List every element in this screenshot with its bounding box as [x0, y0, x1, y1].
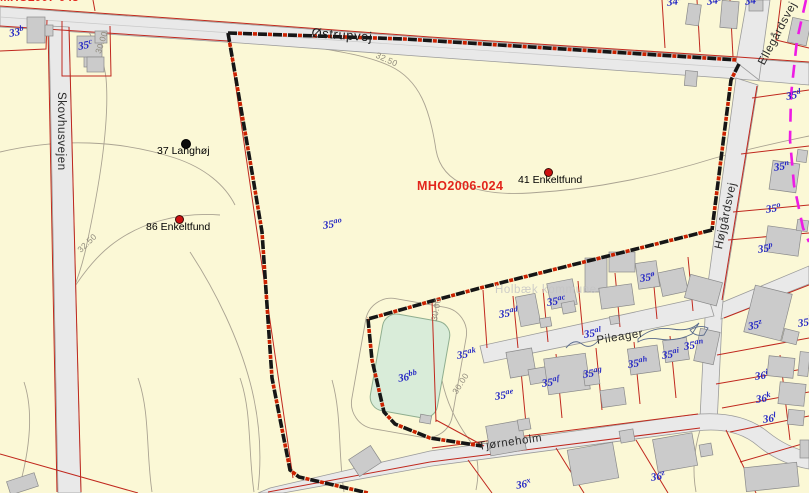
parcel-label: 35al — [583, 326, 602, 341]
parcel-label: 35an — [683, 337, 705, 353]
find-label: 37 Langhøj — [157, 146, 210, 157]
map-canvas[interactable]: MHO2007-043 Østrupvej Skovhusvejen Elleg… — [0, 0, 809, 493]
municipality-watermark: Holbæk kommune — [495, 285, 597, 297]
parcel-label: 35ag — [582, 365, 603, 381]
parcel-label: 35af — [541, 374, 561, 389]
case-number-label: MHO2006-024 — [417, 180, 503, 193]
parcel-label: 33b — [8, 24, 25, 39]
parcel-label: 35n — [773, 159, 790, 174]
parcel-label: 35ah — [627, 355, 649, 371]
map-geometry — [0, 0, 809, 493]
parcel-label: 36i — [754, 368, 769, 383]
parcel-label: 35o — [765, 201, 782, 216]
parcel-label: 35ø — [639, 270, 656, 285]
road-hojgardsvej — [700, 78, 758, 424]
parcel-label: 35ac — [546, 293, 567, 309]
find-label: 41 Enkeltfund — [518, 175, 582, 186]
parcel-label: 35ak — [456, 346, 477, 362]
parcel-label: 36k — [755, 391, 772, 406]
parcel-label: 35d — [785, 87, 802, 102]
parcel-label: 36l — [762, 411, 777, 426]
parcel-label: 35ae — [494, 387, 515, 403]
parcel-label: 35p — [757, 241, 774, 256]
parcel-label: 35ai — [661, 347, 680, 362]
parcel-label: 35z — [747, 317, 763, 332]
parcel-label: 35ad — [498, 305, 519, 321]
parcel-label: 36z — [650, 469, 666, 484]
parcel-label: 35b — [797, 315, 809, 330]
parcel-label: 36x — [515, 476, 532, 491]
road-label-skovhusvejen: Skovhusvejen — [55, 92, 67, 171]
parcel-label: 35c — [77, 37, 94, 52]
find-label: 86 Enkeltfund — [146, 222, 210, 233]
clipped-case-label: MHO2007-043 — [0, 0, 79, 3]
parcel-label: 35ao — [322, 216, 343, 232]
